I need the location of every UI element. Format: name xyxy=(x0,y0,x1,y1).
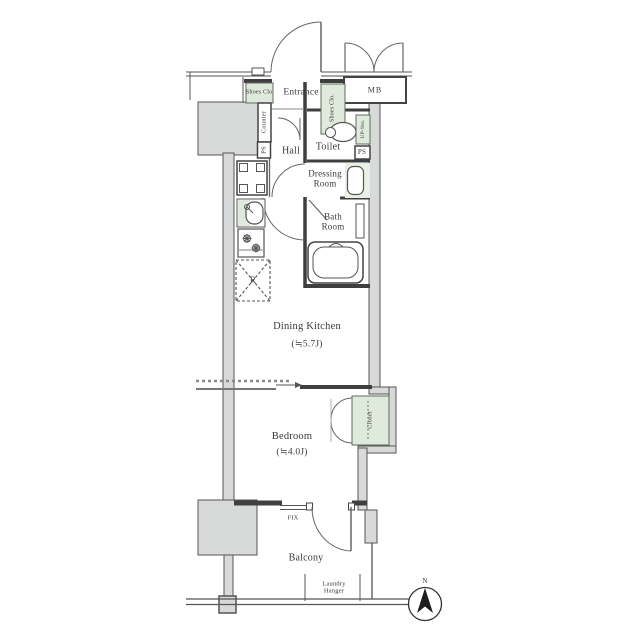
label-pipe-space-left: PS xyxy=(260,146,267,154)
label-toilet: Toilet xyxy=(316,141,340,153)
label-pipe-space-right: PS xyxy=(358,148,366,156)
dressing-basin xyxy=(345,163,370,198)
label-shoes-closet-side: Shoes Clo. xyxy=(330,94,337,122)
label-shoes-closet-top: Shoes Clo. xyxy=(246,90,274,97)
label-entrance: Entrance xyxy=(283,88,318,99)
sliding-door xyxy=(196,381,302,389)
entrance-door xyxy=(271,22,321,72)
label-hall: Hall xyxy=(282,145,300,157)
label-meter-box: MB xyxy=(368,85,382,94)
washer-pan xyxy=(237,161,267,195)
label-fix-window: FIX xyxy=(287,514,298,521)
label-balcony: Balcony xyxy=(289,552,324,564)
label-dressing-room: Dressing Room xyxy=(302,169,348,190)
label-counter: Counter xyxy=(260,111,267,133)
closet xyxy=(331,396,389,445)
label-bedroom-size: (≒4.0J) xyxy=(276,448,307,459)
label-bedroom: Bedroom xyxy=(272,431,312,443)
label-laundry-hanger: Laundry Hanger xyxy=(318,581,350,596)
label-dining-kitchen: Dining Kitchen xyxy=(273,321,341,333)
closet-doors xyxy=(331,398,352,443)
kitchen-stove xyxy=(238,229,264,257)
label-closet: Closet xyxy=(366,411,373,429)
balcony-door xyxy=(312,507,351,551)
floorplan-page: Shoes Clo. Entrance Shoes Clo. MB Counte… xyxy=(0,0,628,640)
label-dining-kitchen-size: (≒5.7J) xyxy=(291,340,322,351)
label-upper-storage: UP-Sto. xyxy=(360,120,366,139)
label-bath-room: Bath Room xyxy=(317,212,349,233)
north-arrow-icon xyxy=(409,588,442,621)
fix-window xyxy=(280,503,355,510)
label-north: N xyxy=(422,577,427,585)
label-refrigerator: R xyxy=(250,275,256,285)
kitchen-sink xyxy=(237,199,265,227)
